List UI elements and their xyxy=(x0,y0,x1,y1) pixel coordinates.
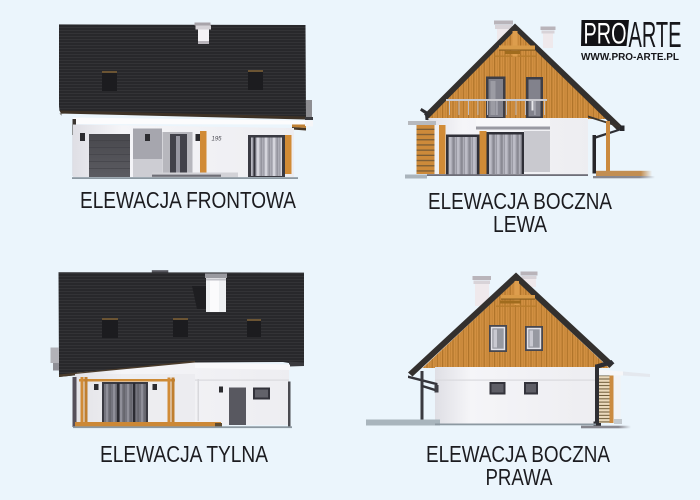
svg-text:ARTE: ARTE xyxy=(629,14,682,55)
svg-text:PRO: PRO xyxy=(584,18,627,51)
svg-text:195: 195 xyxy=(212,137,223,143)
svg-text:LEWA: LEWA xyxy=(493,211,548,237)
svg-text:ELEWACJA FRONTOWA: ELEWACJA FRONTOWA xyxy=(80,187,297,213)
svg-text:ELEWACJA TYLNA: ELEWACJA TYLNA xyxy=(100,441,269,467)
svg-text:WWW.PRO-ARTE.PL: WWW.PRO-ARTE.PL xyxy=(581,51,680,63)
svg-text:PRAWA: PRAWA xyxy=(486,464,554,490)
